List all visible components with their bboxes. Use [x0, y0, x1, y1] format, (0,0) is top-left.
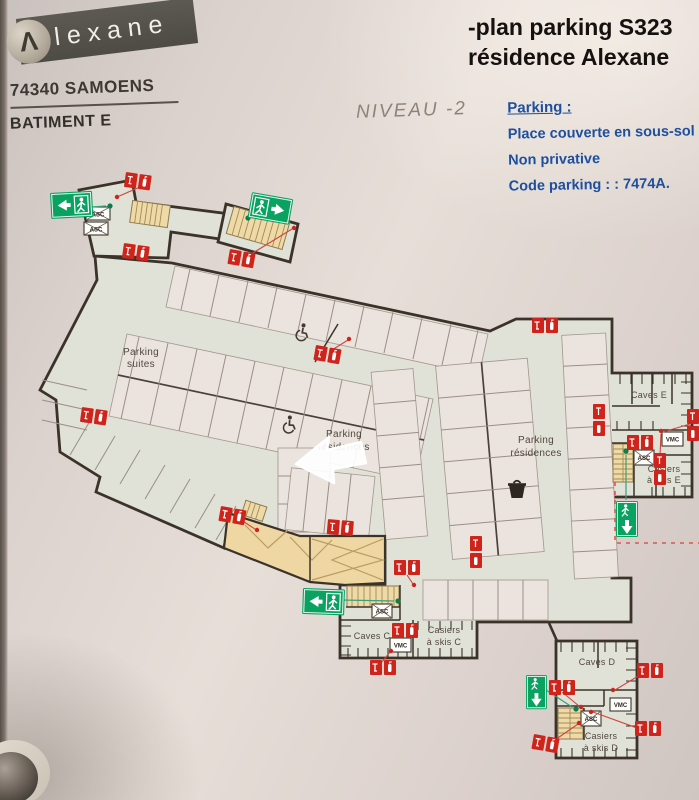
fire-extinguisher-icon	[637, 663, 663, 678]
exit-sign-icon	[302, 588, 345, 615]
svg-text:ASC: ASC	[638, 456, 651, 462]
label-casiers-c: Casiers	[428, 625, 461, 635]
label-parking-residences-right: Parking	[518, 435, 554, 446]
exit-sign-icon	[526, 675, 547, 709]
svg-text:résidences: résidences	[510, 448, 561, 459]
svg-text:à skis D: à skis D	[584, 743, 619, 753]
elevator-box: ASC	[84, 222, 108, 235]
svg-text:à skis C: à skis C	[427, 637, 462, 647]
label-casiers-d: Casiers	[585, 731, 618, 741]
fire-extinguisher-icon	[370, 660, 396, 675]
svg-text:VMC: VMC	[614, 703, 628, 709]
exit-sign-icon	[50, 191, 93, 219]
svg-text:VMC: VMC	[666, 438, 680, 444]
photographed-parking-plan: lexane Λ 74340 SAMOENS BATIMENT E -plan …	[0, 0, 699, 800]
svg-text:ASC: ASC	[585, 717, 598, 723]
label-parking-residences-left: Parking	[326, 429, 362, 440]
fire-extinguisher-icon	[635, 721, 661, 736]
label-caves-c: Caves C	[354, 631, 391, 641]
vmc-box: VMC	[610, 698, 631, 711]
stairs-top-left	[130, 200, 171, 227]
floor-plan: Parking suites Parking résidences Parkin…	[0, 0, 699, 800]
exit-sign-icon	[616, 501, 638, 537]
svg-text:suites: suites	[127, 359, 155, 370]
svg-text:ASC: ASC	[92, 213, 105, 219]
svg-text:VMC: VMC	[394, 644, 408, 650]
label-parking-suites: Parking	[123, 347, 159, 358]
vmc-box: VMC	[662, 432, 683, 446]
svg-text:ASC: ASC	[90, 228, 103, 234]
vmc-box: VMC	[390, 638, 411, 652]
elevator-box: ASC	[634, 450, 654, 465]
svg-text:ASC: ASC	[376, 610, 389, 616]
elevator-box: ASC	[372, 604, 392, 618]
label-caves-e: Caves E	[631, 390, 667, 400]
label-caves-d: Caves D	[579, 657, 616, 667]
